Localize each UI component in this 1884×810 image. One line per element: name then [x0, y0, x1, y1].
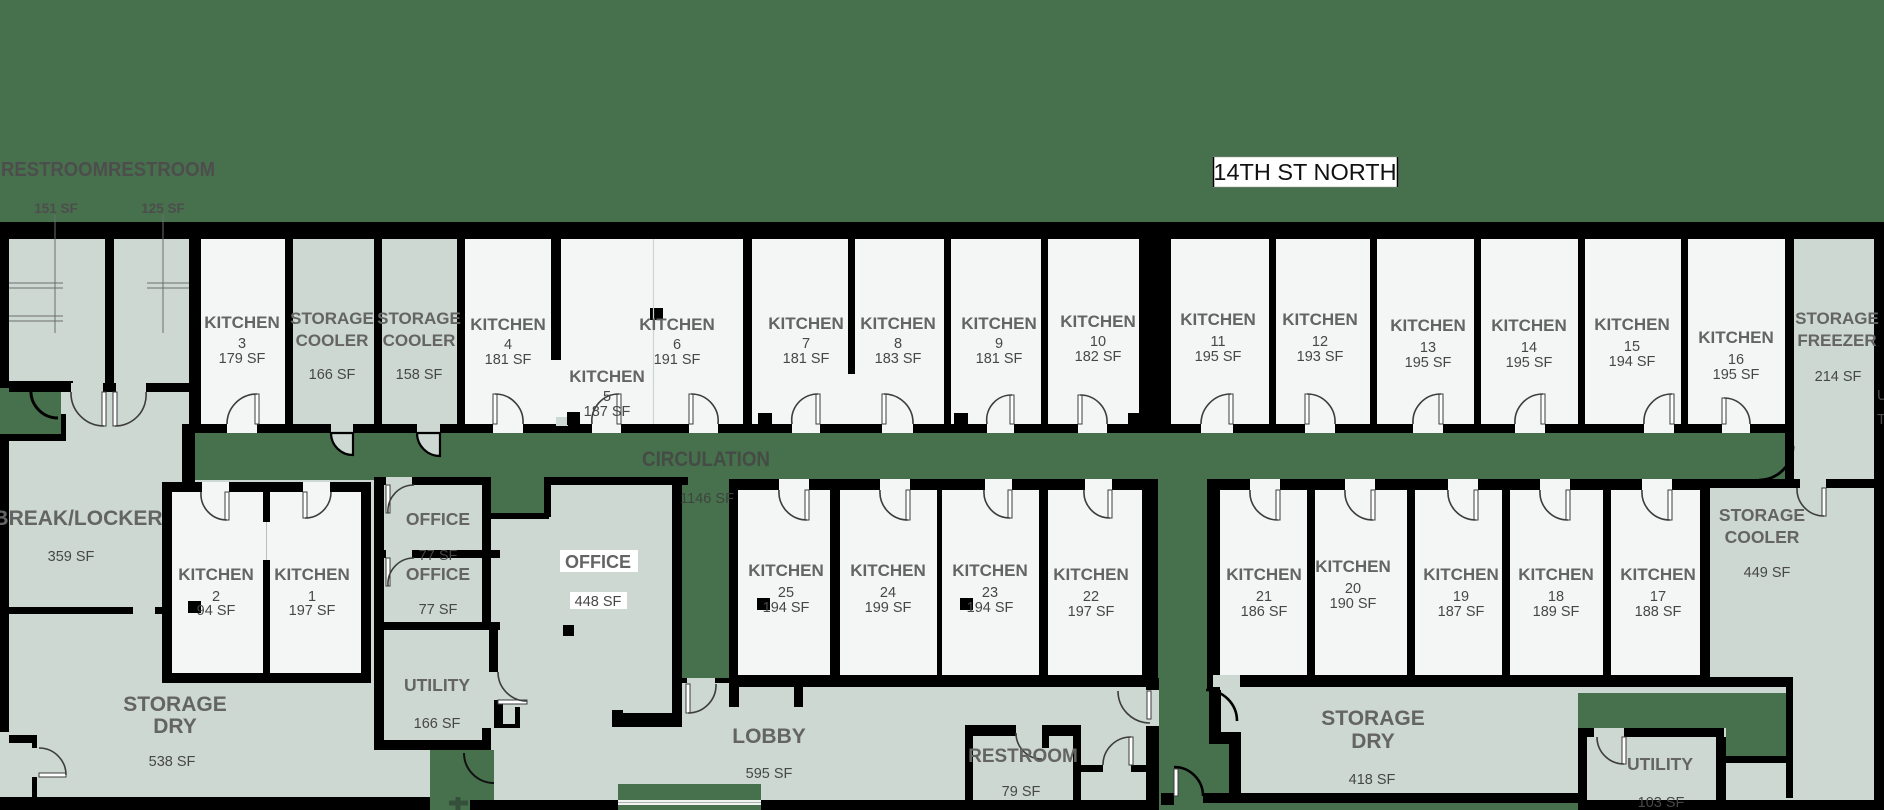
svg-text:KITCHEN: KITCHEN — [748, 561, 824, 580]
svg-text:103 SF: 103 SF — [1638, 795, 1685, 810]
svg-text:195 SF: 195 SF — [1713, 367, 1760, 383]
svg-text:13: 13 — [1420, 340, 1436, 356]
svg-text:KITCHEN: KITCHEN — [1390, 316, 1466, 335]
svg-text:182 SF: 182 SF — [1075, 349, 1122, 365]
svg-text:KITCHEN: KITCHEN — [1226, 565, 1302, 584]
svg-text:191 SF: 191 SF — [654, 352, 701, 368]
svg-text:179 SF: 179 SF — [219, 351, 266, 367]
svg-text:COOLER: COOLER — [296, 331, 369, 350]
svg-text:OFFICE: OFFICE — [406, 509, 470, 529]
svg-text:KITCHEN: KITCHEN — [178, 565, 254, 584]
svg-text:181 SF: 181 SF — [783, 351, 830, 367]
svg-text:14TH ST NORTH: 14TH ST NORTH — [1213, 159, 1396, 185]
svg-text:STORAGE: STORAGE — [123, 693, 226, 716]
svg-text:24: 24 — [880, 585, 896, 601]
svg-text:COOLER: COOLER — [1725, 527, 1800, 547]
svg-text:OFFICE: OFFICE — [406, 564, 470, 584]
svg-text:KITCHEN: KITCHEN — [961, 314, 1037, 333]
svg-text:193 SF: 193 SF — [1297, 349, 1344, 365]
svg-text:21: 21 — [1256, 589, 1272, 605]
svg-text:187 SF: 187 SF — [1438, 604, 1485, 620]
svg-text:KITCHEN: KITCHEN — [1594, 315, 1670, 334]
svg-text:166 SF: 166 SF — [414, 716, 461, 732]
svg-text:19: 19 — [1453, 589, 1469, 605]
svg-text:94 SF: 94 SF — [197, 603, 236, 619]
svg-text:7: 7 — [802, 336, 810, 352]
svg-text:STORAGE: STORAGE — [290, 309, 374, 328]
svg-text:197 SF: 197 SF — [1068, 604, 1115, 620]
svg-text:77 SF: 77 SF — [419, 548, 458, 564]
svg-text:194 SF: 194 SF — [967, 600, 1014, 616]
svg-text:20: 20 — [1345, 581, 1361, 597]
svg-text:17: 17 — [1650, 589, 1666, 605]
svg-text:KITCHEN: KITCHEN — [860, 314, 936, 333]
svg-text:BREAK/LOCKER: BREAK/LOCKER — [0, 507, 163, 530]
svg-text:125 SF: 125 SF — [141, 201, 185, 216]
svg-text:KITCHEN: KITCHEN — [1620, 565, 1696, 584]
svg-text:189 SF: 189 SF — [1533, 604, 1580, 620]
svg-text:KITCHEN: KITCHEN — [1053, 565, 1129, 584]
svg-text:KITCHEN: KITCHEN — [1282, 310, 1358, 329]
svg-text:4: 4 — [504, 337, 512, 353]
svg-text:KITCHEN: KITCHEN — [1180, 310, 1256, 329]
svg-text:KITCHEN: KITCHEN — [1698, 328, 1774, 347]
svg-text:KITCHEN: KITCHEN — [274, 565, 350, 584]
svg-text:KITCHEN: KITCHEN — [768, 314, 844, 333]
svg-text:6: 6 — [673, 337, 681, 353]
svg-text:KITCHEN: KITCHEN — [1423, 565, 1499, 584]
svg-text:STORAGE: STORAGE — [1321, 707, 1424, 730]
svg-text:RESTROOMRESTROOM: RESTROOMRESTROOM — [1, 159, 215, 181]
svg-text:194 SF: 194 SF — [1609, 354, 1656, 370]
svg-text:595 SF: 595 SF — [746, 766, 793, 782]
svg-text:359 SF: 359 SF — [48, 549, 95, 565]
svg-text:22: 22 — [1083, 589, 1099, 605]
svg-text:KITCHEN: KITCHEN — [1518, 565, 1594, 584]
svg-text:5: 5 — [603, 389, 611, 405]
svg-text:195 SF: 195 SF — [1405, 355, 1452, 371]
svg-text:RESTROOM: RESTROOM — [968, 746, 1078, 767]
svg-text:T: T — [1877, 412, 1884, 428]
svg-text:188 SF: 188 SF — [1635, 604, 1682, 620]
svg-text:190 SF: 190 SF — [1330, 596, 1377, 612]
svg-text:25: 25 — [778, 585, 794, 601]
svg-text:COOLER: COOLER — [383, 331, 456, 350]
svg-text:195 SF: 195 SF — [1506, 355, 1553, 371]
svg-text:8: 8 — [894, 336, 902, 352]
svg-text:18: 18 — [1548, 589, 1564, 605]
svg-text:15: 15 — [1624, 339, 1640, 355]
svg-text:12: 12 — [1312, 334, 1328, 350]
svg-text:KITCHEN: KITCHEN — [850, 561, 926, 580]
svg-text:183 SF: 183 SF — [875, 351, 922, 367]
svg-text:448 SF: 448 SF — [575, 594, 622, 610]
svg-text:11: 11 — [1210, 334, 1225, 350]
svg-text:449 SF: 449 SF — [1744, 565, 1791, 581]
svg-text:STORAGE: STORAGE — [377, 309, 461, 328]
svg-text:DRY: DRY — [1351, 730, 1395, 753]
svg-text:151 SF: 151 SF — [34, 201, 78, 216]
svg-text:538 SF: 538 SF — [149, 754, 196, 770]
svg-text:194 SF: 194 SF — [763, 600, 810, 616]
svg-text:77 SF: 77 SF — [419, 602, 458, 618]
svg-text:KITCHEN: KITCHEN — [569, 367, 645, 386]
svg-text:3: 3 — [238, 336, 246, 352]
svg-text:79 SF: 79 SF — [1002, 784, 1041, 800]
svg-text:U: U — [1877, 388, 1884, 404]
svg-text:418 SF: 418 SF — [1349, 772, 1396, 788]
svg-text:23: 23 — [982, 585, 998, 601]
svg-text:186 SF: 186 SF — [1241, 604, 1288, 620]
svg-text:UTILITY: UTILITY — [1627, 754, 1693, 774]
svg-text:214 SF: 214 SF — [1815, 369, 1862, 385]
svg-text:181 SF: 181 SF — [485, 352, 532, 368]
svg-text:1146 SF: 1146 SF — [680, 491, 734, 507]
svg-text:KITCHEN: KITCHEN — [470, 315, 546, 334]
svg-text:187 SF: 187 SF — [584, 404, 631, 420]
svg-text:CIRCULATION: CIRCULATION — [642, 448, 770, 471]
svg-text:10: 10 — [1090, 334, 1106, 350]
svg-text:DRY: DRY — [153, 715, 197, 738]
svg-text:14: 14 — [1521, 340, 1537, 356]
svg-text:197 SF: 197 SF — [289, 603, 336, 619]
svg-text:KITCHEN: KITCHEN — [952, 561, 1028, 580]
svg-text:199 SF: 199 SF — [865, 600, 912, 616]
svg-text:9: 9 — [995, 336, 1003, 352]
svg-text:KITCHEN: KITCHEN — [1491, 316, 1567, 335]
svg-text:KITCHEN: KITCHEN — [639, 315, 715, 334]
svg-text:STORAGE: STORAGE — [1795, 309, 1879, 328]
svg-text:STORAGE: STORAGE — [1719, 505, 1805, 525]
svg-text:KITCHEN: KITCHEN — [204, 313, 280, 332]
svg-text:UTILITY: UTILITY — [404, 675, 470, 695]
svg-text:KITCHEN: KITCHEN — [1060, 312, 1136, 331]
svg-text:FREEZER: FREEZER — [1797, 331, 1876, 350]
svg-text:195 SF: 195 SF — [1195, 349, 1242, 365]
svg-text:OFFICE: OFFICE — [565, 552, 631, 572]
svg-text:KITCHEN: KITCHEN — [1315, 557, 1391, 576]
svg-text:166 SF: 166 SF — [309, 367, 356, 383]
svg-text:LOBBY: LOBBY — [732, 725, 806, 748]
svg-text:16: 16 — [1728, 352, 1744, 368]
svg-text:158 SF: 158 SF — [396, 367, 443, 383]
svg-text:181 SF: 181 SF — [976, 351, 1023, 367]
